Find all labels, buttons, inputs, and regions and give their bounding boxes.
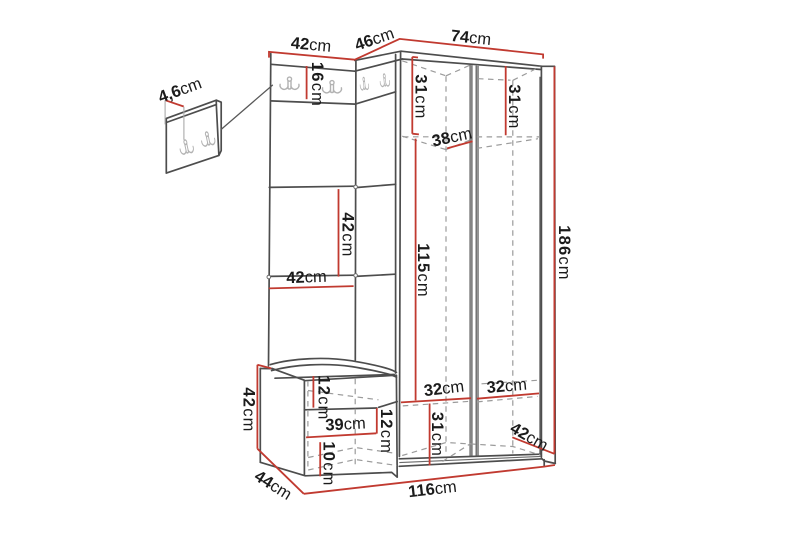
svg-text:31cm: 31cm	[505, 84, 523, 129]
svg-text:42cm: 42cm	[286, 268, 327, 287]
svg-text:16cm: 16cm	[308, 62, 326, 107]
svg-text:115cm: 115cm	[414, 243, 432, 298]
svg-text:10cm: 10cm	[320, 441, 338, 486]
svg-text:12cm: 12cm	[377, 409, 395, 454]
svg-text:186cm: 186cm	[555, 225, 573, 281]
svg-text:42cm: 42cm	[240, 387, 258, 432]
svg-text:12cm: 12cm	[315, 375, 333, 420]
svg-text:42cm: 42cm	[290, 34, 332, 56]
svg-text:42cm: 42cm	[339, 212, 357, 257]
svg-text:31cm: 31cm	[428, 412, 446, 457]
svg-text:32cm: 32cm	[486, 376, 528, 397]
svg-text:31cm: 31cm	[412, 74, 430, 119]
